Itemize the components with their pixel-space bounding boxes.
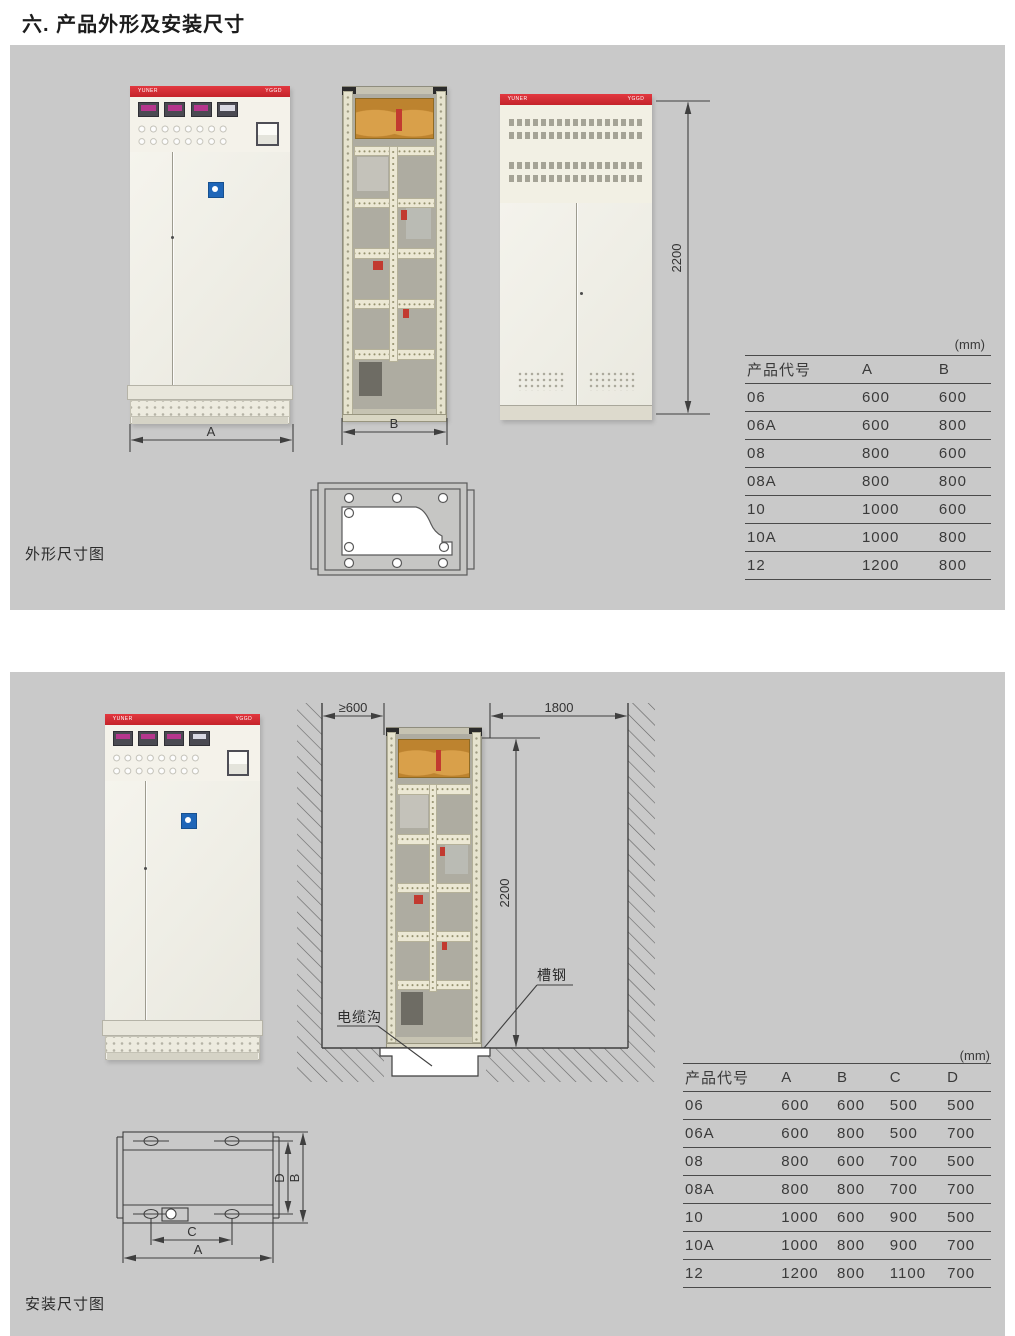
cell: 06 [745, 384, 860, 412]
cell: 1100 [888, 1260, 945, 1288]
cell: 08 [683, 1148, 779, 1176]
cell: 600 [835, 1204, 888, 1232]
cell: 08A [683, 1176, 779, 1204]
foundation-plan-drawing [117, 1132, 308, 1263]
plan-dim-label-a: A [194, 1242, 203, 1257]
cell: 08 [745, 440, 860, 468]
catalog-page: 六. 产品外形及安装尺寸 YUNER YGGD [0, 0, 1015, 1336]
col-header: D [945, 1064, 991, 1092]
cell: 500 [945, 1092, 991, 1120]
install-caption: 安装尺寸图 [25, 1293, 105, 1314]
dim-label-height: 2200 [497, 879, 512, 908]
cell: 600 [937, 440, 991, 468]
cell: 1000 [860, 524, 937, 552]
table-row: 101000600 [745, 496, 991, 524]
cell: 08A [745, 468, 860, 496]
cell: 600 [779, 1120, 835, 1148]
cell: 600 [835, 1092, 888, 1120]
table-row: 06600600500500 [683, 1092, 991, 1120]
dim-label-left-clearance: ≥600 [339, 700, 368, 715]
table-row: 101000600900500 [683, 1204, 991, 1232]
cell: 800 [937, 412, 991, 440]
cell: 600 [860, 384, 937, 412]
page-title: 六. 产品外形及安装尺寸 [22, 8, 245, 37]
col-header: 产品代号 [745, 356, 860, 384]
cell: 600 [937, 384, 991, 412]
col-header: B [835, 1064, 888, 1092]
cell: 1200 [860, 552, 937, 580]
cell: 500 [945, 1204, 991, 1232]
col-header: A [779, 1064, 835, 1092]
table-row: 121200800 [745, 552, 991, 580]
cell: 700 [945, 1120, 991, 1148]
cell: 500 [945, 1148, 991, 1176]
cell: 800 [835, 1176, 888, 1204]
cell: 800 [835, 1232, 888, 1260]
cable-trench-shape [380, 1048, 490, 1076]
cell: 600 [937, 496, 991, 524]
cell: 10 [745, 496, 860, 524]
cell: 10A [745, 524, 860, 552]
cell: 06A [683, 1120, 779, 1148]
unit-label: (mm) [900, 1048, 990, 1063]
col-header: A [860, 356, 937, 384]
channel-steel-label: 槽钢 [537, 965, 567, 985]
table-row: 08800600700500 [683, 1148, 991, 1176]
cell: 700 [888, 1148, 945, 1176]
cell: 06 [683, 1092, 779, 1120]
cell: 700 [888, 1176, 945, 1204]
cell: 1000 [779, 1204, 835, 1232]
cell: 500 [888, 1120, 945, 1148]
col-header: B [937, 356, 991, 384]
table-row: 08800600 [745, 440, 991, 468]
install-dimension-table: 产品代号 A B C D 06600600500500 06A600800500… [683, 1063, 991, 1288]
col-header: 产品代号 [683, 1064, 779, 1092]
cell: 800 [779, 1148, 835, 1176]
table-header-row: 产品代号 A B [745, 356, 991, 384]
unit-label: (mm) [895, 337, 985, 352]
cell: 800 [860, 468, 937, 496]
cell: 10A [683, 1232, 779, 1260]
table-row: 06A600800 [745, 412, 991, 440]
cable-trench-label: 电缆沟 [337, 1007, 382, 1027]
cell: 600 [835, 1148, 888, 1176]
cell: 800 [779, 1176, 835, 1204]
cell: 800 [937, 552, 991, 580]
install-panel: YUNER YGGD [10, 672, 1005, 1336]
dim-label-a: A [207, 424, 216, 439]
outline-caption: 外形尺寸图 [25, 543, 105, 564]
table-row: 08A800800700700 [683, 1176, 991, 1204]
cell: 10 [683, 1204, 779, 1232]
cell: 700 [945, 1260, 991, 1288]
cell: 700 [945, 1176, 991, 1204]
table-header-row: 产品代号 A B C D [683, 1064, 991, 1092]
cell: 06A [745, 412, 860, 440]
cell: 1000 [860, 496, 937, 524]
cell: 12 [745, 552, 860, 580]
table-row: 06600600 [745, 384, 991, 412]
cell: 800 [835, 1260, 888, 1288]
outline-dimension-table: 产品代号 A B 06600600 06A600800 08800600 08A… [745, 355, 991, 580]
plan-dim-label-b: B [287, 1174, 302, 1183]
cell: 1200 [779, 1260, 835, 1288]
dim-label-height: 2200 [669, 244, 684, 273]
table-row: 08A800800 [745, 468, 991, 496]
cell: 700 [945, 1232, 991, 1260]
cell: 500 [888, 1092, 945, 1120]
cell: 800 [937, 468, 991, 496]
cell: 800 [860, 440, 937, 468]
table-row: 06A600800500700 [683, 1120, 991, 1148]
col-header: C [888, 1064, 945, 1092]
plan-dim-label-c: C [187, 1224, 196, 1239]
cell: 900 [888, 1204, 945, 1232]
cell: 900 [888, 1232, 945, 1260]
cell: 1000 [779, 1232, 835, 1260]
cell: 800 [937, 524, 991, 552]
dim-label-b: B [390, 416, 399, 431]
table-row: 1212008001100700 [683, 1260, 991, 1288]
dim-label-rear-clearance: 1800 [545, 700, 574, 715]
cell: 600 [779, 1092, 835, 1120]
table-row: 10A1000800 [745, 524, 991, 552]
outline-panel: YUNER YGGD [10, 45, 1005, 610]
cell: 12 [683, 1260, 779, 1288]
cell: 600 [860, 412, 937, 440]
cell: 800 [835, 1120, 888, 1148]
table-row: 10A1000800900700 [683, 1232, 991, 1260]
plan-dim-label-d: D [272, 1173, 287, 1182]
top-plate-drawing [311, 483, 474, 575]
